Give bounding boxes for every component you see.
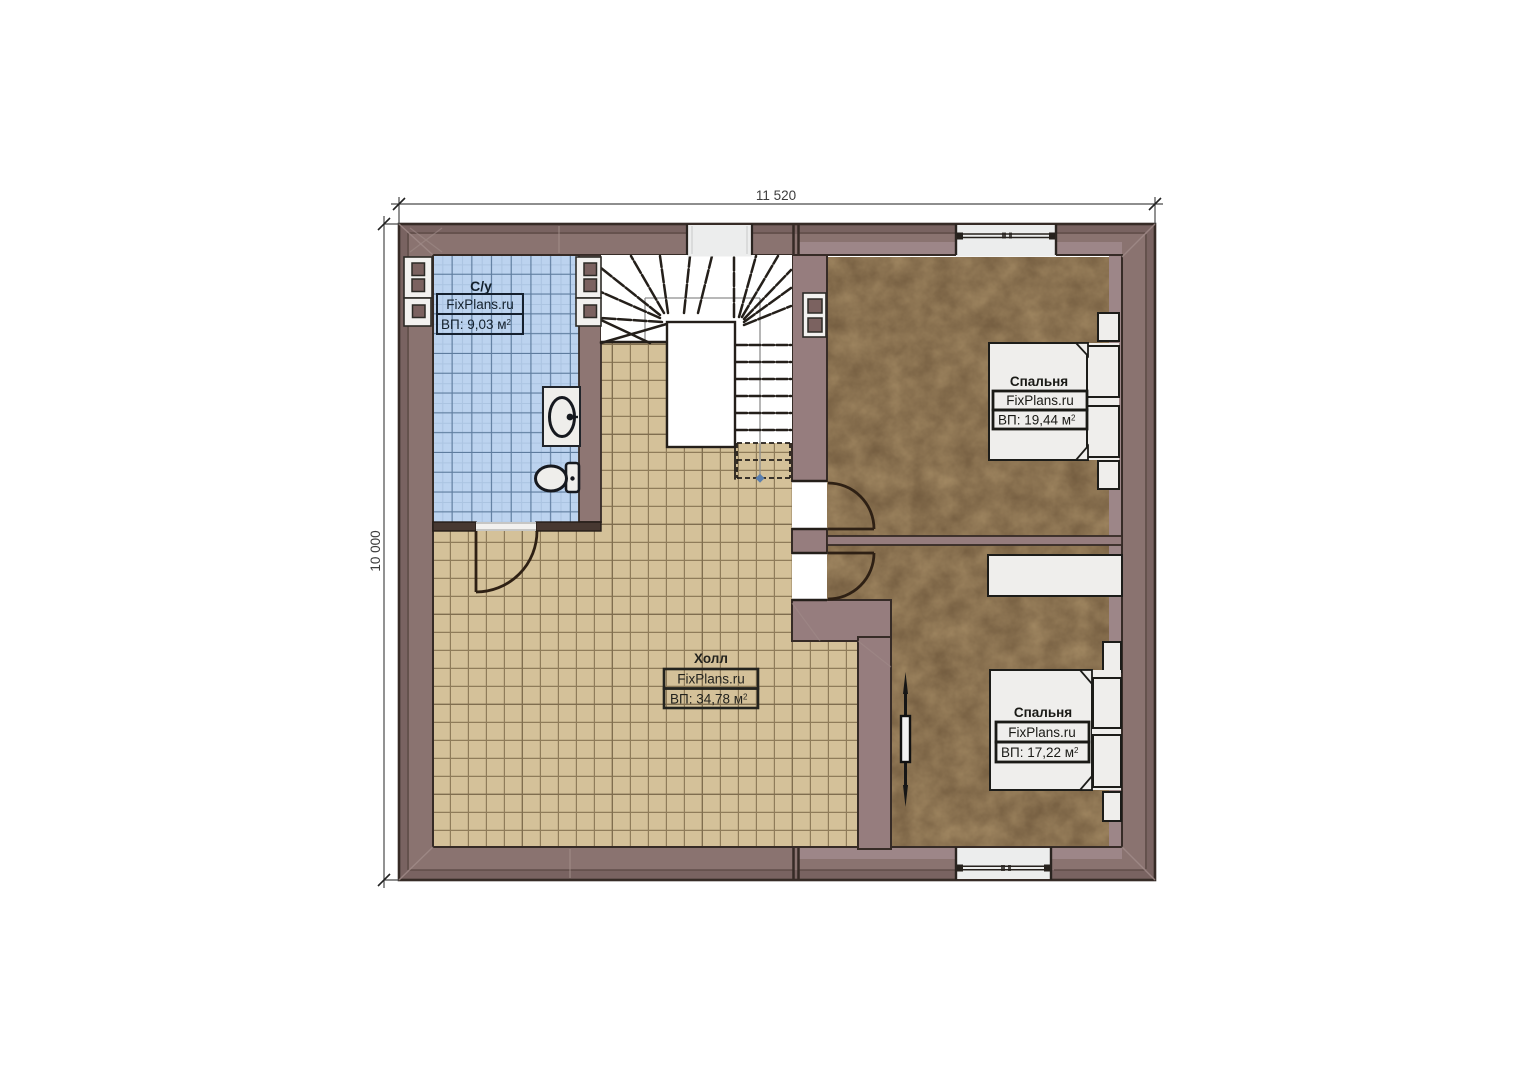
svg-text:Холл: Холл [694,651,728,666]
svg-text:ВП: 17,22 м2: ВП: 17,22 м2 [1001,745,1079,760]
svg-text:10 000: 10 000 [368,530,383,571]
svg-text:FixPlans.ru: FixPlans.ru [446,297,514,312]
svg-text:11 520: 11 520 [756,188,796,203]
svg-text:Спальня: Спальня [1010,374,1068,389]
svg-text:ВП: 34,78 м2: ВП: 34,78 м2 [670,692,748,707]
svg-text:ВП: 19,44 м2: ВП: 19,44 м2 [998,413,1076,428]
svg-text:Спальня: Спальня [1014,705,1072,720]
svg-text:FixPlans.ru: FixPlans.ru [1006,393,1074,408]
svg-text:FixPlans.ru: FixPlans.ru [677,672,745,687]
svg-text:FixPlans.ru: FixPlans.ru [1008,725,1076,740]
svg-text:ВП: 9,03 м2: ВП: 9,03 м2 [441,317,512,332]
svg-text:С/у: С/у [470,278,492,294]
